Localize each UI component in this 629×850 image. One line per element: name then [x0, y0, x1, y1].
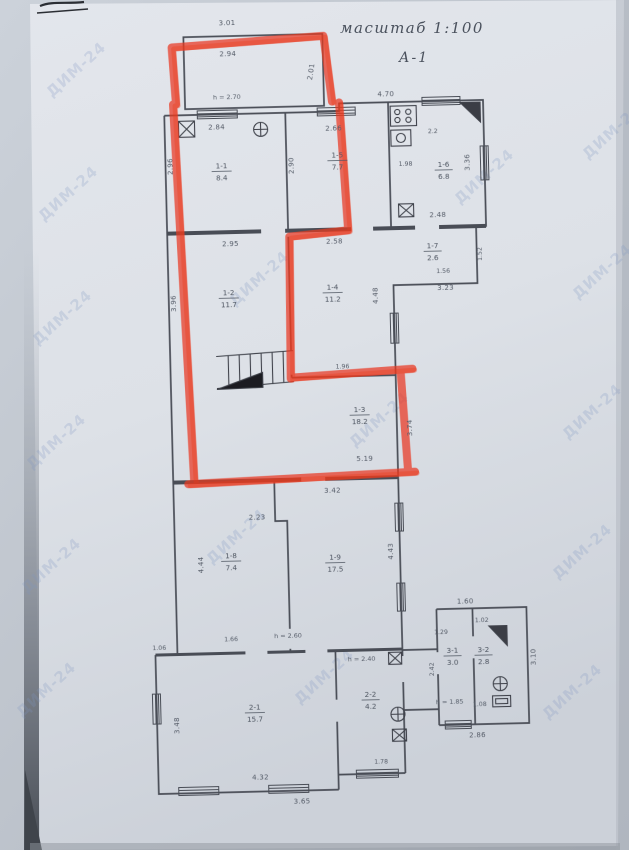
dim: 1.52 — [477, 247, 484, 261]
room-number: 2-2 — [364, 690, 376, 699]
dim: 2.86 — [469, 731, 486, 739]
dim: 2.48 — [429, 211, 446, 219]
room-area: 2.6 — [427, 253, 439, 262]
room-area: 3.0 — [447, 658, 459, 667]
dim: 3.42 — [324, 487, 341, 495]
dim: 1.60 — [457, 597, 474, 605]
dim: 1.08 — [473, 701, 487, 708]
sheet-label: А-1 — [398, 50, 429, 66]
height-note: h = 2.60 — [274, 632, 302, 641]
room-area: 18.2 — [352, 417, 368, 426]
room-area: 11.7 — [221, 300, 237, 309]
room-area: 2.8 — [478, 657, 490, 666]
room-number: 3-2 — [477, 645, 489, 654]
room-area: 15.7 — [247, 714, 263, 723]
note-porch-height: h = 2.70 — [213, 93, 241, 102]
room-number: 3-1 — [446, 646, 458, 655]
dim: 2.84 — [208, 123, 225, 131]
dim: 1.96 — [335, 363, 349, 370]
room-area: 17.5 — [327, 564, 343, 573]
scale-label: масштаб 1:100 — [340, 19, 484, 37]
dim: 3.36 — [463, 154, 471, 171]
floorplan-svg: ДИМ-24 ДИМ-24 ДИМ-24 ДИМ-24 ДИМ-24 ДИМ-2… — [0, 0, 629, 850]
room-area: 7.4 — [226, 563, 238, 572]
dim: 3.10 — [529, 648, 537, 665]
height-note: h = 2.40 — [348, 655, 376, 664]
dim: 2.23 — [249, 513, 266, 521]
dim: 2.95 — [222, 240, 239, 248]
dim: 4.32 — [252, 773, 269, 781]
dim: 2.58 — [326, 237, 343, 245]
dim: 4.43 — [387, 543, 395, 560]
room-number: 1-6 — [438, 160, 450, 169]
height-note: h = 1.85 — [436, 698, 464, 707]
room-number: 1-1 — [216, 161, 228, 170]
dim: 3.96 — [170, 295, 178, 312]
dim: 2.90 — [287, 157, 295, 174]
room-area: 11.2 — [325, 294, 341, 303]
dim: 3.48 — [173, 717, 181, 734]
dim: 2.66 — [325, 124, 342, 132]
room-number: 2-1 — [249, 703, 261, 712]
floorplan-photo: ДИМ-24 ДИМ-24 ДИМ-24 ДИМ-24 ДИМ-24 ДИМ-2… — [0, 0, 629, 850]
dim: 4.44 — [197, 556, 205, 573]
dim: 2.42 — [429, 662, 436, 676]
dim: 1.06 — [152, 645, 166, 652]
room-area: 7.7 — [332, 162, 344, 171]
dim: 5.19 — [356, 455, 373, 463]
dim: 2.96 — [166, 158, 174, 175]
dim: 3.65 — [294, 797, 311, 805]
dim: 3.23 — [437, 284, 454, 292]
dim-top-right: 4.70 — [377, 90, 394, 98]
room-area: 4.2 — [365, 702, 377, 711]
toilet-icon — [493, 677, 507, 691]
room-number: 1-2 — [223, 288, 235, 297]
dim: 3.74 — [406, 419, 414, 436]
dim: 1.66 — [224, 636, 238, 643]
room-number: 1-8 — [225, 551, 237, 560]
dim-porch-top: 3.01 — [219, 19, 236, 27]
dim: 1.98 — [399, 161, 413, 168]
room-area: 6.8 — [438, 172, 450, 181]
room-number: 1-3 — [354, 405, 366, 414]
room-area: 8.4 — [216, 173, 228, 182]
dim-porch-inner: 2.94 — [219, 50, 236, 58]
room-number: 1-4 — [327, 282, 339, 291]
room-number: 1-7 — [427, 241, 439, 250]
room-number: 1-5 — [331, 150, 343, 159]
dim: 4.48 — [372, 287, 380, 304]
dim: 2.2 — [428, 128, 438, 135]
dim: 1.78 — [374, 758, 388, 765]
boiler-icon — [253, 122, 267, 136]
dim: 1.56 — [436, 268, 450, 275]
boiler-icon — [391, 707, 405, 721]
dim: 1.29 — [434, 629, 448, 636]
room-number: 1-9 — [329, 553, 341, 562]
paper-bottom-edge — [30, 843, 620, 850]
dim: 1.02 — [475, 617, 489, 624]
